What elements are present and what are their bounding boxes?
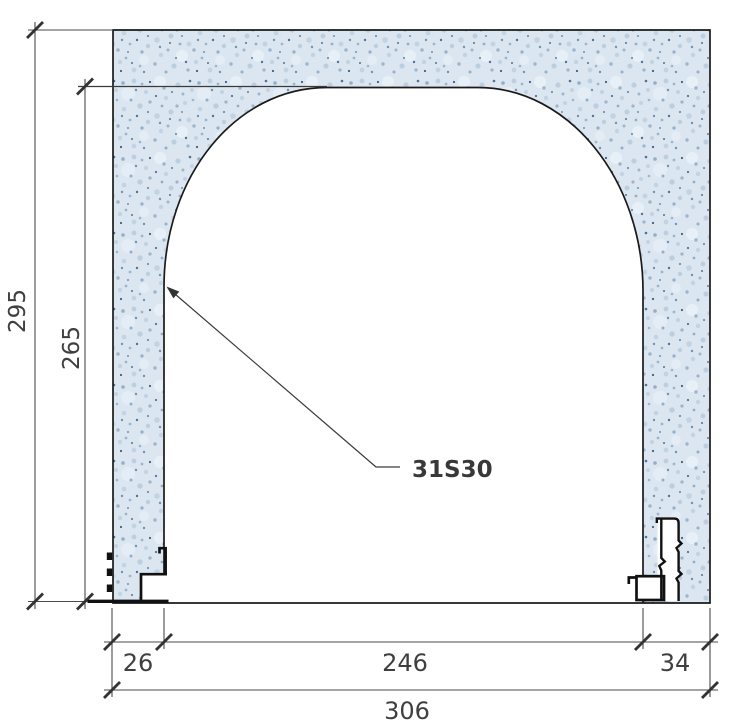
- arched-wall-section-drawing: 295 265 26 246 34 306 31S30: [0, 0, 733, 724]
- dim-right-pier-label: 34: [660, 649, 691, 677]
- wall-section: [113, 30, 710, 603]
- left-base-notch: [140, 575, 165, 602]
- component-label: 31S30: [412, 457, 493, 483]
- dim-overall-height-label: 295: [5, 289, 31, 333]
- left-edge-clip-marks: [107, 553, 112, 593]
- dim-overall-width-label: 306: [384, 697, 430, 724]
- right-track-profile: [637, 576, 665, 600]
- leader-line: [168, 288, 400, 467]
- dim-opening-height-label: 265: [59, 326, 85, 370]
- technical-drawing-canvas: 295 265 26 246 34 306 31S30: [0, 0, 733, 724]
- dim-left-pier-label: 26: [123, 649, 154, 677]
- dim-opening-width-label: 246: [382, 649, 428, 677]
